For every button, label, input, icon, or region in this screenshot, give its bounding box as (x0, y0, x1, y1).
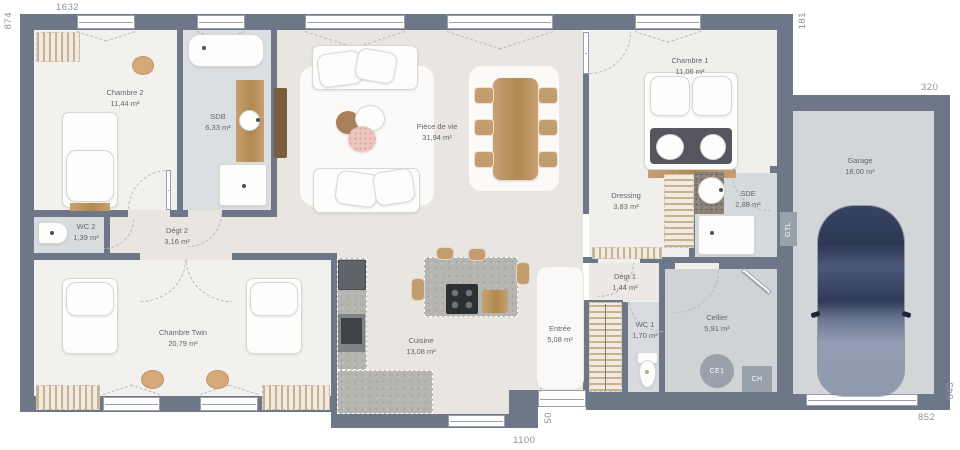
room-label-sdb: SDB 6,33 m² (205, 112, 230, 133)
sink-faucet (719, 188, 723, 192)
window-swing-dashes (635, 30, 701, 46)
room-label-degt-1: Dégt 1 1,44 m² (612, 272, 637, 293)
bed-pillow (250, 282, 298, 316)
stool (412, 279, 424, 300)
room-name: WC 1 (632, 320, 657, 331)
entrance-door (538, 390, 586, 407)
closet-rail (605, 304, 606, 390)
dim-entry: 50 (543, 412, 554, 424)
boiler-tag: CH (742, 366, 772, 392)
wall (622, 302, 628, 392)
room-label-chambre-1: Chambre 1 11,06 m² (671, 56, 708, 77)
car-mirror (810, 311, 820, 319)
dim-top-width: 1632 (56, 2, 79, 13)
room-name: Cuisine (406, 336, 436, 347)
door-leaf (583, 32, 589, 74)
bed-bench (70, 203, 110, 211)
room-area: 1,44 m² (612, 283, 637, 294)
chair (539, 120, 557, 135)
room-name: Dressing (611, 191, 641, 202)
console-table (274, 88, 287, 158)
room-label-piece-de-vie: Pièce de vie 31,94 m² (417, 122, 458, 143)
room-name: SDE (735, 189, 760, 200)
shower-drain (710, 231, 714, 235)
shower-drain (242, 184, 246, 188)
cutting-board (482, 290, 508, 313)
kitchen-counter (337, 370, 433, 414)
teddy-bear (207, 371, 228, 388)
oven-door (341, 318, 362, 344)
room-name: Entrée (547, 324, 572, 335)
wall (20, 14, 34, 412)
dim-garage-top: 320 (921, 82, 938, 93)
chair (475, 88, 493, 103)
teddy-bear (142, 371, 163, 388)
bed-pillow (66, 150, 114, 202)
bed-pillow (650, 76, 690, 116)
room-area: 1,39 m² (73, 233, 98, 244)
window (448, 415, 505, 427)
window (200, 397, 258, 411)
wall (934, 95, 950, 410)
room-area: 11,06 m² (671, 67, 708, 78)
window-swing-dashes (77, 30, 135, 46)
chair (475, 120, 493, 135)
room-name: SDB (205, 112, 230, 123)
wall (770, 166, 777, 173)
door-leaf (166, 170, 171, 210)
room-label-dressing: Dressing 3,83 m² (611, 191, 641, 212)
water-heater-tag: CE1 (700, 354, 734, 388)
dim-left-height: 874 (3, 12, 14, 29)
wall (719, 263, 777, 269)
wall (170, 210, 188, 217)
car (818, 206, 904, 396)
wall (665, 263, 675, 269)
room-area: 2,88 m² (735, 200, 760, 211)
floor-plan: GTL CE1 CH Chambre 2 11,44 m² SDB 6,33 m… (0, 0, 960, 450)
room-name: Chambre 1 (671, 56, 708, 67)
cooktop (446, 284, 478, 314)
room-area: 11,44 m² (106, 99, 143, 110)
kitchen-sink-unit (338, 260, 366, 290)
bed-pillow (66, 282, 114, 316)
dim-right-upper: 181 (797, 12, 808, 29)
teddy-bear (133, 57, 153, 74)
wardrobe (664, 174, 694, 248)
room-name: Garage (845, 156, 875, 167)
wall (222, 210, 277, 217)
toilet-flush (50, 231, 54, 235)
room-name: WC 2 (73, 222, 98, 233)
window-swing-dashes (447, 30, 553, 48)
wall (232, 253, 337, 260)
room-label-garage: Garage 18,00 m² (845, 156, 875, 177)
wall (793, 95, 950, 111)
wardrobe (36, 385, 100, 410)
wardrobe (592, 247, 662, 259)
wardrobe (36, 32, 80, 62)
room-area: 13,08 m² (406, 347, 436, 358)
wall (583, 74, 589, 214)
room-area: 5,91 m² (704, 324, 729, 335)
room-area: 3,83 m² (611, 202, 641, 213)
room-name: Dégt 2 (164, 226, 189, 237)
shower (698, 215, 755, 255)
room-label-wc-1: WC 1 1,70 m² (632, 320, 657, 341)
window (447, 15, 553, 29)
sofa-cushions (372, 167, 417, 207)
gtl-tag: GTL (780, 212, 797, 246)
bed-pillow (656, 134, 684, 160)
room-label-degt-2: Dégt 2 3,16 m² (164, 226, 189, 247)
dim-garage-right: 643 (945, 382, 956, 399)
room-area: 1,70 m² (632, 331, 657, 342)
window (197, 15, 245, 29)
window (635, 15, 701, 29)
room-name: Cellier (704, 313, 729, 324)
chair (539, 88, 557, 103)
stool (437, 248, 453, 259)
room-area: 6,33 m² (205, 123, 230, 134)
room-label-cuisine: Cuisine 13,08 m² (406, 336, 436, 357)
sofa-cushions (354, 47, 399, 85)
bathtub-faucet (202, 46, 206, 50)
bed-pillow (692, 76, 732, 116)
wall (34, 253, 140, 260)
dim-bottom-width: 1100 (513, 435, 535, 446)
room-area: 18,00 m² (845, 167, 875, 178)
room-label-chambre-2: Chambre 2 11,44 m² (106, 88, 143, 109)
bed-pillow (700, 134, 726, 160)
wall (34, 210, 128, 217)
coffee-table-pink (348, 126, 376, 152)
room-label-sde: SDE 2,88 m² (735, 189, 760, 210)
room-label-cellier: Cellier 5,91 m² (704, 313, 729, 334)
room-area: 20,79 m² (159, 339, 207, 350)
sink-faucet (256, 118, 260, 122)
wall (177, 30, 183, 213)
window (305, 15, 405, 29)
wall (586, 392, 793, 410)
dim-garage-bottom: 852 (918, 412, 935, 423)
toilet-flush (645, 370, 649, 374)
chair (539, 152, 557, 167)
room-name: Pièce de vie (417, 122, 458, 133)
dining-table (493, 78, 538, 180)
window (103, 397, 160, 411)
room-label-wc-2: WC 2 1,39 m² (73, 222, 98, 243)
room-area: 31,94 m² (417, 133, 458, 144)
room-area: 5,08 m² (547, 335, 572, 346)
room-name: Chambre Twin (159, 328, 207, 339)
window (77, 15, 135, 29)
wall (509, 390, 538, 428)
room-label-entree: Entrée 5,08 m² (547, 324, 572, 345)
room-name: Chambre 2 (106, 88, 143, 99)
room-label-chambre-twin: Chambre Twin 20,79 m² (159, 328, 207, 349)
room-name: Dégt 1 (612, 272, 637, 283)
wardrobe (262, 385, 330, 410)
stool (469, 249, 485, 260)
bathtub (188, 34, 264, 67)
stool (517, 263, 529, 284)
room-area: 3,16 m² (164, 237, 189, 248)
chair (475, 152, 493, 167)
